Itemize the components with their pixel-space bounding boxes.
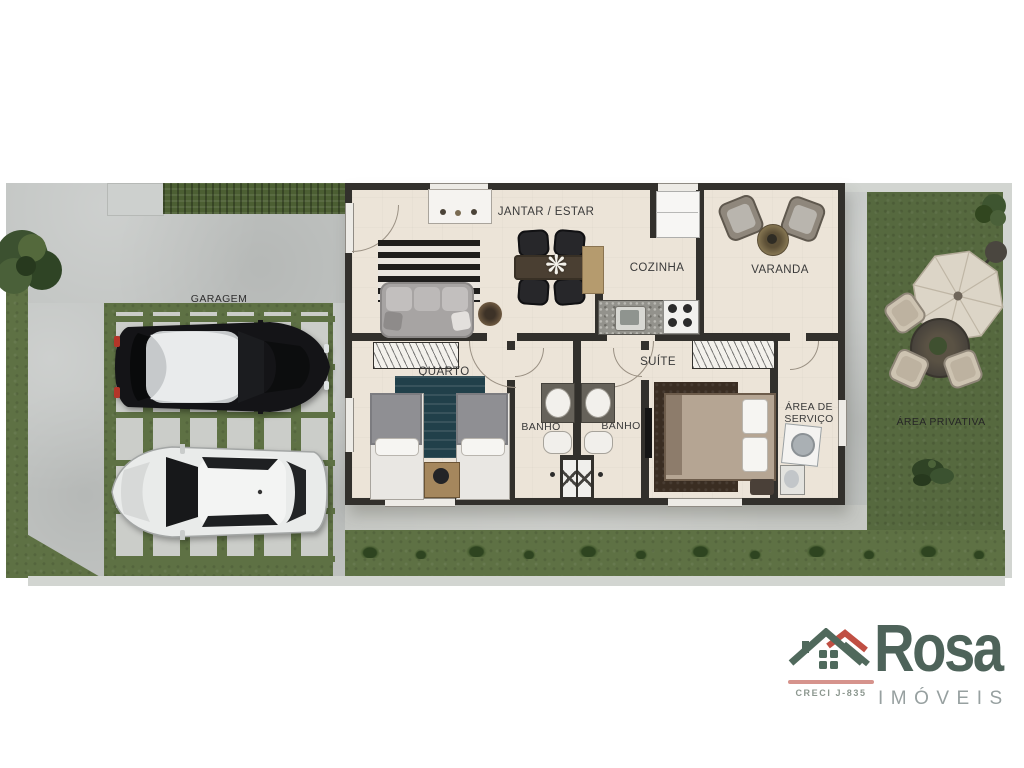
room-label-area-servico: ÁREA DE SERVIÇO (784, 402, 833, 425)
table-centerpiece: ❋ (545, 250, 568, 281)
sink (545, 388, 571, 418)
grass-tuft (918, 544, 939, 557)
grass-tuft (806, 544, 827, 557)
varanda-table-decor (767, 234, 777, 244)
room-label-garagem: GARAGEM (191, 293, 247, 305)
side-walkway (845, 183, 867, 530)
patio-table-plant (929, 337, 947, 355)
window (668, 498, 742, 507)
closet-door (578, 460, 591, 497)
floor-lamp (478, 302, 502, 326)
corner-bush-icon (972, 190, 1008, 230)
twin-bed-pillow (461, 438, 505, 456)
bottom-lawn-strip (345, 530, 1005, 578)
nightstand-bowl (433, 468, 449, 484)
suite-pillow (742, 437, 768, 472)
room-label-varanda: VARANDA (751, 264, 809, 276)
logo-underline (788, 680, 874, 684)
hedge-row (163, 183, 345, 214)
room-label-cozinha: COZINHA (630, 262, 685, 274)
toilet (584, 431, 613, 454)
wall-segment (517, 333, 607, 341)
wall-segment (806, 333, 838, 341)
closet-door (563, 460, 576, 497)
sideboard-decor (440, 209, 446, 215)
grass-tuft (466, 544, 487, 557)
sofa-pillow (451, 311, 472, 332)
grass-tuft (522, 549, 536, 559)
stove-burner (683, 318, 692, 327)
console-bench (582, 246, 604, 294)
white-car (110, 444, 330, 540)
room-label-suite: SUÍTE (640, 356, 676, 368)
sideboard-decor (471, 209, 477, 215)
grass-tuft (414, 549, 428, 559)
twin-bed-pillow (375, 438, 419, 456)
floor-drain (550, 472, 555, 477)
grass-tuft (972, 549, 986, 559)
grass-tuft (360, 545, 380, 558)
logo-subtitle: IMÓVEIS (878, 688, 1010, 710)
suite-pillow (742, 399, 768, 434)
sofa-pillow (383, 311, 403, 331)
wardrobe (373, 342, 459, 369)
dining-chair (517, 277, 550, 306)
tv-panel (645, 408, 652, 458)
logo-license: CRECI J-835 (786, 688, 876, 698)
front-sidewalk (345, 505, 867, 530)
driveway-column (28, 303, 104, 578)
service-door-gap (838, 400, 847, 446)
stove-burner (668, 318, 677, 327)
concrete-pad (107, 183, 164, 216)
room-label-area-privativa: ÁREA PRIVATIVA (896, 416, 985, 428)
stove-burner (683, 304, 692, 313)
wardrobe (692, 340, 775, 369)
dark-car (112, 320, 334, 414)
grass-tuft (690, 544, 711, 557)
kitchen-sink-basin (620, 310, 639, 325)
brand-logo: CRECI J-835 Rosa IMÓVEIS (786, 618, 1016, 722)
suite-bench (750, 479, 774, 495)
laundry-tank-basin (784, 470, 799, 488)
grass-tuft (748, 549, 762, 559)
floorplan-render: GARAGEM (0, 0, 1024, 768)
floor-drain (598, 472, 603, 477)
window (345, 398, 354, 452)
room-label-area-servico-line1: ÁREA DE (784, 402, 833, 414)
fridge-seam (656, 212, 698, 213)
room-label-jantar-estar: JANTAR / ESTAR (498, 206, 595, 218)
fridge (656, 191, 700, 238)
tree-icon (0, 218, 70, 310)
bottom-curb (28, 576, 1005, 586)
logo-house-icon (788, 628, 874, 678)
toilet (543, 431, 572, 454)
suite-bed-foot-throw (666, 395, 682, 475)
grass-tuft (862, 549, 876, 559)
sofa-cushion (442, 287, 468, 311)
sink (585, 388, 611, 418)
stove-burner (668, 304, 677, 313)
sofa-cushion (414, 287, 440, 311)
grass-tuft (634, 549, 648, 559)
grass-tuft (578, 544, 599, 557)
sideboard-decor (455, 210, 461, 216)
garden-plant-icon (904, 444, 962, 496)
sideboard (428, 189, 492, 224)
sofa-cushion (386, 287, 412, 311)
logo-brand-text: Rosa (874, 616, 1002, 682)
